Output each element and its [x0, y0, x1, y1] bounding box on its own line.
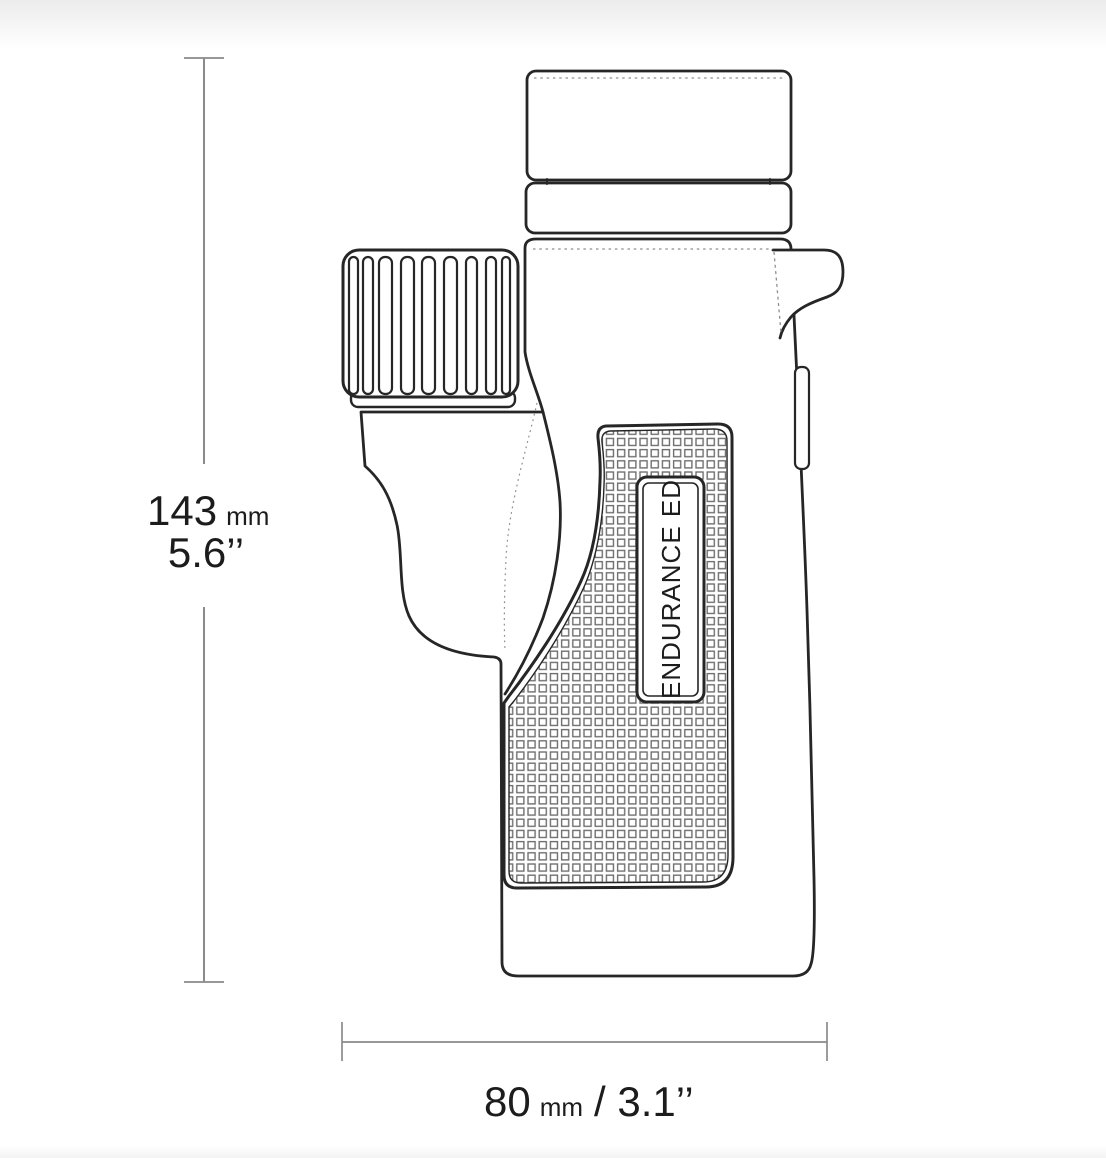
- product-dimension-diagram: ENDURANCE ED: [0, 0, 1106, 1158]
- width-dimension-labels: 80mm/ 3.1’’: [484, 1078, 694, 1125]
- height-label-mm: 143mm: [147, 487, 269, 534]
- monocular-body-group: ENDURANCE ED: [343, 71, 843, 976]
- monocular-line-drawing: ENDURANCE ED: [0, 0, 1106, 1158]
- height-dimension-labels: 143mm 5.6’’: [147, 487, 269, 576]
- strap-attachment: [795, 367, 809, 469]
- height-label-inches: 5.6’’: [168, 529, 244, 576]
- focus-wheel: [343, 250, 518, 397]
- focus-wheel-body: [343, 250, 518, 397]
- eyecup: [527, 71, 791, 180]
- diopter-ring: [526, 183, 791, 233]
- width-label: 80mm/ 3.1’’: [484, 1078, 694, 1125]
- thumb-hook: [773, 250, 843, 338]
- width-dimension: [342, 1022, 827, 1061]
- badge-label: ENDURANCE ED: [656, 479, 686, 699]
- model-badge: ENDURANCE ED: [637, 477, 704, 702]
- eyepiece: [526, 71, 791, 233]
